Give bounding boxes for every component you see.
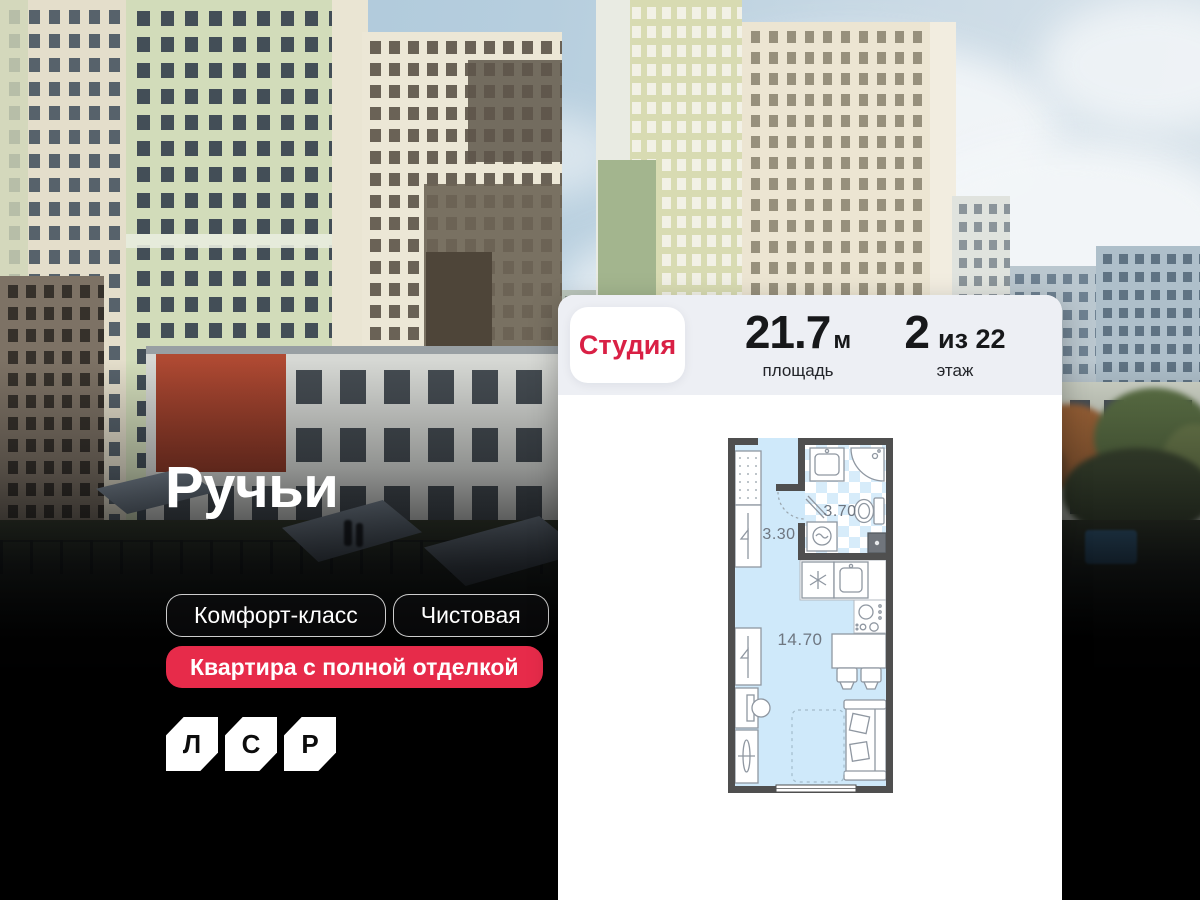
wardrobe-icon [735, 628, 761, 685]
logo-tile: С [225, 717, 277, 771]
area-unit: м [833, 329, 851, 353]
apartment-type-chip: Студия [570, 307, 685, 383]
area-number: 21.7 [745, 309, 831, 355]
tag-finishing: Чистовая [393, 594, 549, 637]
wardrobe-icon [735, 505, 761, 567]
table-icon [832, 634, 886, 668]
area-stat: 21.7м площадь [713, 295, 883, 395]
floor-of-total: из 22 [938, 326, 1006, 353]
window [776, 785, 856, 792]
floor-number: 2 [904, 309, 929, 355]
floor-plan: 3.30 3.70 14.70 [728, 438, 893, 793]
chair-icon [752, 699, 770, 717]
toilet-icon [855, 498, 885, 524]
highlight-tag: Квартира с полной отделкой [166, 646, 543, 688]
room-area-label: 14.70 [777, 630, 822, 649]
card-header: Студия 21.7м площадь 2из 22 этаж [558, 295, 1062, 395]
logo-tile: Р [284, 717, 336, 771]
fridge-icon [802, 562, 834, 598]
dresser-icon [735, 730, 758, 783]
washing-machine-icon [807, 522, 837, 551]
promo-screenshot: Ручьи Комфорт-класс Чистовая Квартира с … [0, 0, 1200, 900]
sofa-bed-icon [844, 700, 886, 780]
tag-list: Комфорт-класс Чистовая [166, 594, 549, 637]
apartment-card[interactable]: Студия 21.7м площадь 2из 22 этаж [558, 295, 1062, 900]
tag-comfort-class: Комфорт-класс [166, 594, 386, 637]
bathroom-sink-icon [810, 448, 844, 481]
closet-icon [735, 451, 761, 505]
floor-label: этаж [937, 361, 974, 381]
room-area-label: 3.70 [823, 503, 856, 520]
room-area-label: 3.30 [762, 526, 795, 543]
lsr-logo: Л С Р [166, 717, 336, 771]
kitchen-sink-icon [834, 562, 868, 598]
duct-vent [875, 541, 879, 545]
floor-value: 2из 22 [904, 309, 1005, 355]
area-label: площадь [763, 361, 834, 381]
floor-stat: 2из 22 этаж [880, 295, 1030, 395]
logo-tile: Л [166, 717, 218, 771]
area-value: 21.7м [745, 309, 851, 355]
project-title: Ручьи [165, 454, 338, 521]
